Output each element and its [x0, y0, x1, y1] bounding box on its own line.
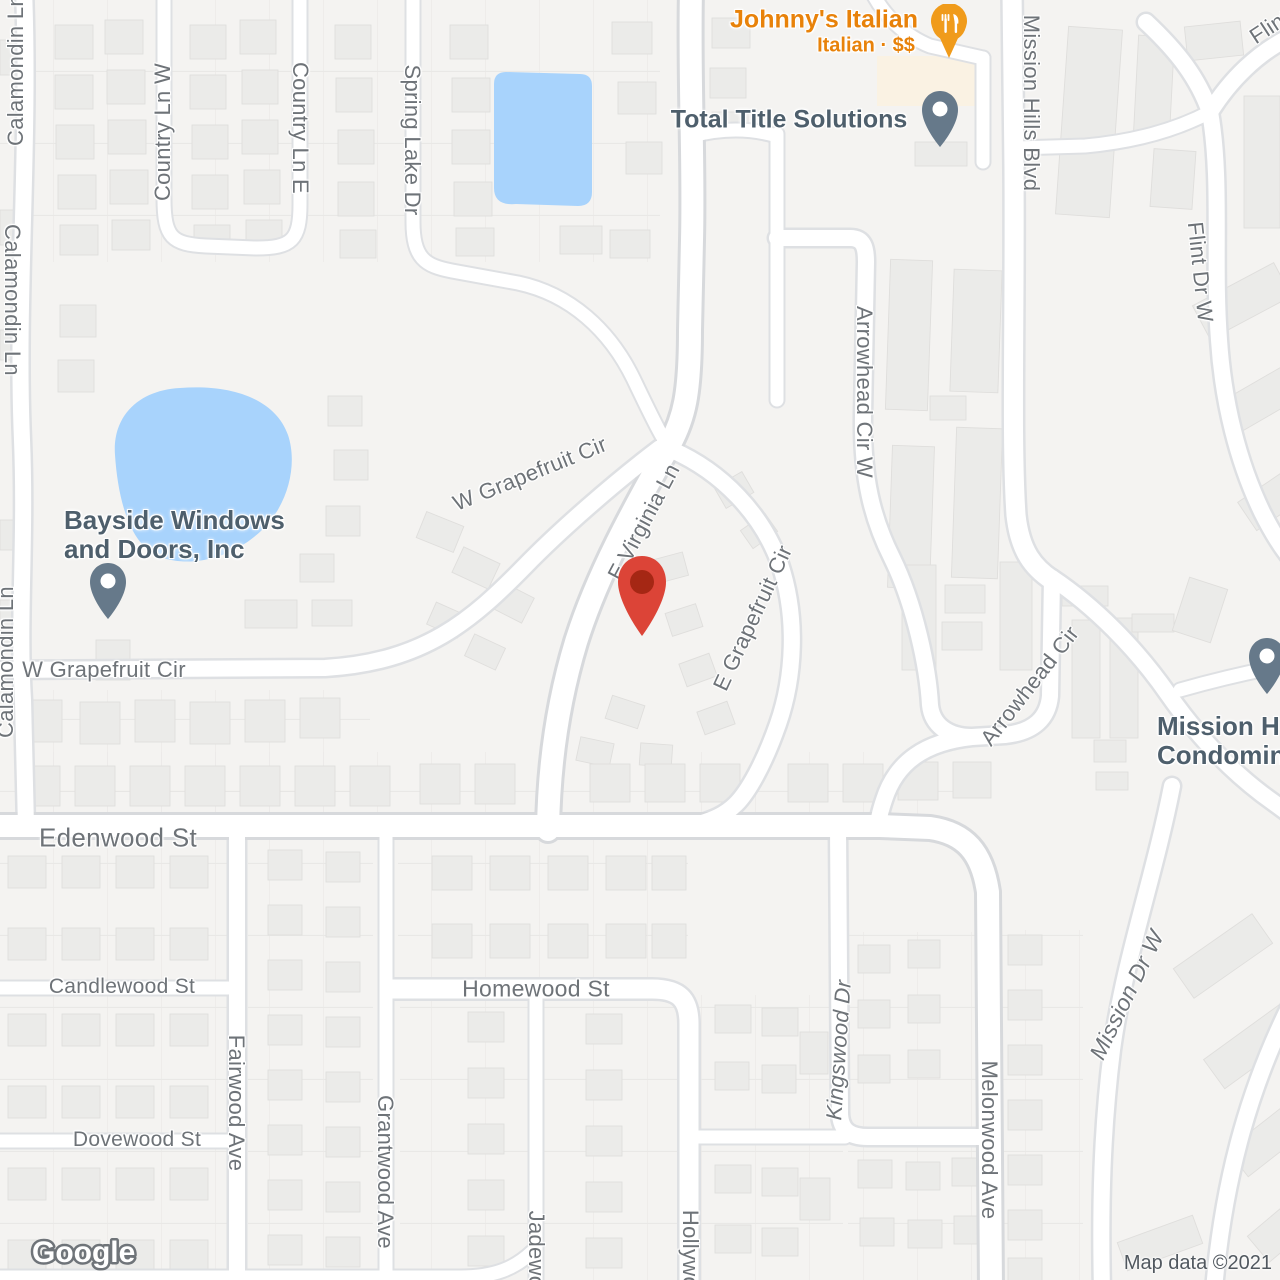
poi-label-bayside-line1: Bayside Windows: [64, 506, 285, 535]
poi-label-mission-line2: Condominiu: [1157, 741, 1280, 770]
poi-label-mission-line1: Mission H: [1157, 712, 1280, 741]
restaurant-pin-johnnys[interactable]: [929, 4, 969, 67]
poi-pin-mission-condo[interactable]: [1245, 635, 1280, 702]
map-canvas[interactable]: Calamondin LnCalamondin LnCalamondin LnC…: [0, 0, 1280, 1280]
map-attribution: Map data ©2021: [1124, 1252, 1272, 1275]
poi-subtitle-johnnys-italian: Italian · $$: [817, 35, 915, 58]
poi-label-total-title-solutions[interactable]: Total Title Solutions: [671, 106, 908, 135]
google-logo[interactable]: Google: [26, 1230, 156, 1279]
poi-pin-total-title[interactable]: [918, 88, 962, 155]
poi-label-bayside-windows[interactable]: Bayside Windows and Doors, Inc: [64, 506, 285, 564]
poi-label-johnnys-italian[interactable]: Johnny's Italian: [730, 6, 918, 35]
destination-pin[interactable]: [613, 552, 671, 645]
poi-label-mission-condominiums[interactable]: Mission H Condominiu: [1157, 712, 1280, 770]
svg-text:Google: Google: [32, 1236, 135, 1269]
poi-pin-bayside[interactable]: [86, 560, 130, 627]
